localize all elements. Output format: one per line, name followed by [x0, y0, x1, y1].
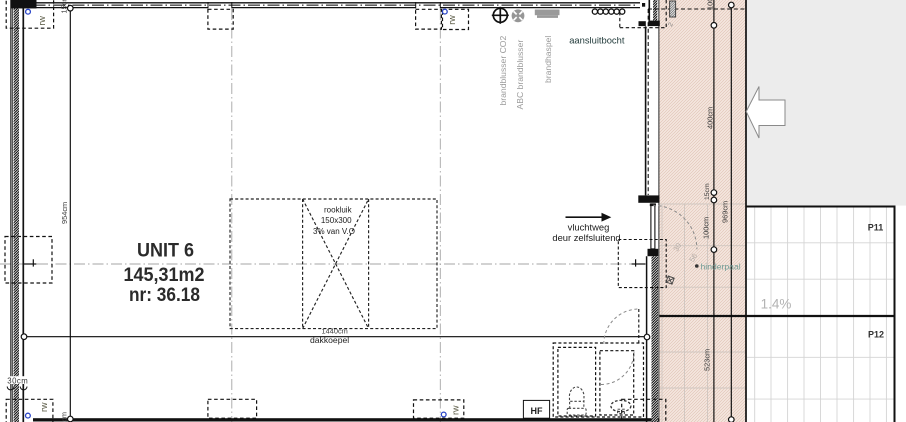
svg-text:vluchtweg: vluchtweg: [568, 222, 610, 233]
svg-text:15cm: 15cm: [60, 0, 69, 14]
svg-text:nr: 36.18: nr: 36.18: [129, 285, 200, 306]
svg-text:150x300: 150x300: [321, 216, 352, 225]
svg-text:3% van V.O: 3% van V.O: [313, 227, 355, 236]
svg-text:P11: P11: [868, 223, 884, 233]
svg-text:15cm: 15cm: [704, 183, 711, 200]
svg-text:rw: rw: [447, 15, 457, 25]
svg-text:523cm: 523cm: [702, 349, 711, 371]
svg-text:deur zelfsluitend: deur zelfsluitend: [552, 232, 620, 243]
svg-text:UNIT 6: UNIT 6: [137, 240, 194, 261]
svg-text:100cm: 100cm: [702, 217, 711, 239]
svg-text:969cm: 969cm: [721, 201, 730, 223]
svg-text:1.4%: 1.4%: [761, 297, 792, 312]
svg-text:954cm: 954cm: [60, 202, 69, 224]
svg-text:rookluik: rookluik: [324, 206, 353, 215]
svg-text:brandblusser CO2: brandblusser CO2: [498, 36, 508, 106]
svg-text:ABC brandblusser: ABC brandblusser: [515, 40, 525, 110]
svg-text:brandhaspel: brandhaspel: [543, 36, 553, 83]
svg-text:rw: rw: [37, 16, 47, 26]
svg-text:P12: P12: [868, 330, 884, 340]
svg-text:rw: rw: [39, 402, 49, 412]
svg-text:dakkoepel: dakkoepel: [310, 335, 349, 345]
svg-text:rw: rw: [451, 405, 461, 415]
svg-text:hinderpaal: hinderpaal: [701, 261, 741, 271]
svg-text:HF: HF: [531, 406, 543, 416]
svg-text:15cm: 15cm: [60, 412, 69, 422]
svg-text:100cm: 100cm: [705, 0, 714, 10]
svg-text:30cm: 30cm: [7, 376, 28, 385]
svg-text:145,31m2: 145,31m2: [124, 265, 205, 286]
svg-text:aansluitbocht: aansluitbocht: [569, 35, 625, 46]
svg-text:400cm: 400cm: [705, 107, 714, 129]
